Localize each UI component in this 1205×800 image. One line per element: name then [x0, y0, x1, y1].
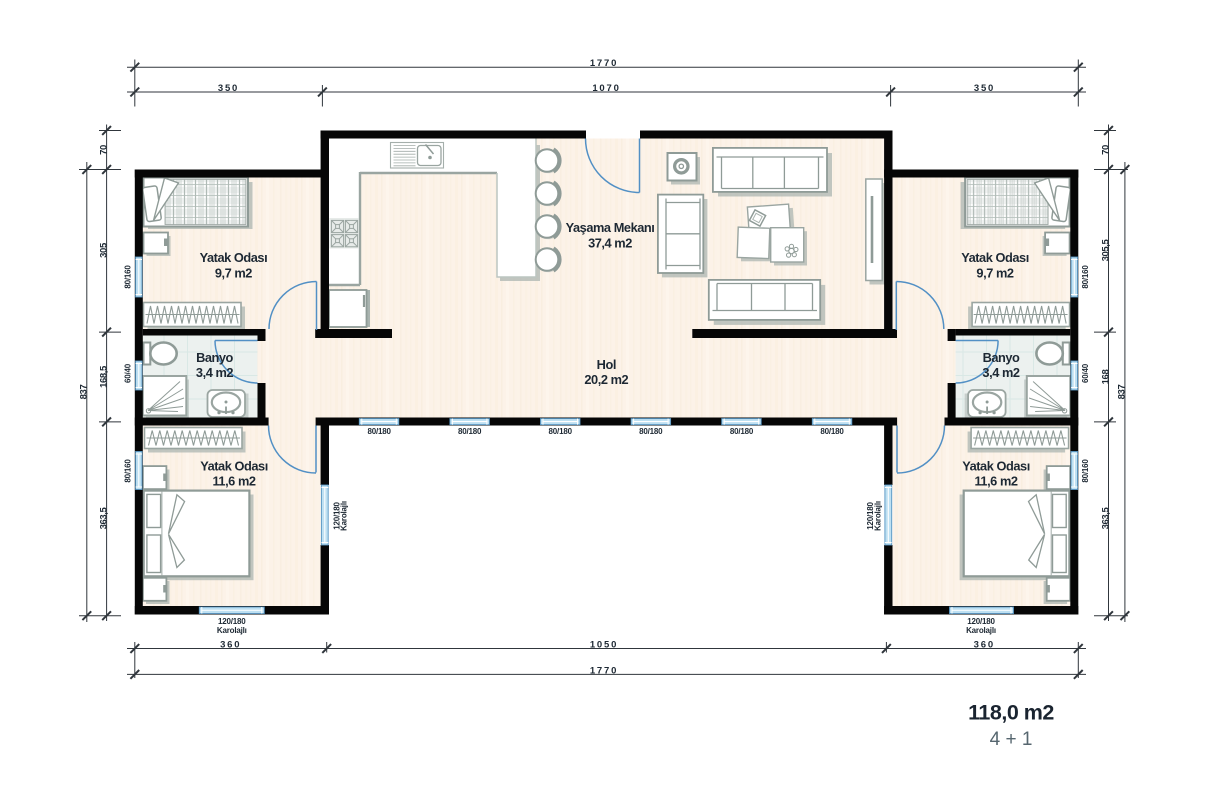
- svg-text:80/180: 80/180: [730, 427, 754, 436]
- svg-text:80/180: 80/180: [549, 427, 573, 436]
- svg-text:837: 837: [79, 385, 90, 400]
- svg-text:Karolajlı: Karolajlı: [217, 626, 247, 635]
- svg-text:305: 305: [98, 242, 109, 258]
- svg-text:Karolajlı: Karolajlı: [966, 626, 996, 635]
- svg-text:37,4 m2: 37,4 m2: [588, 236, 632, 251]
- svg-text:Yatak Odası: Yatak Odası: [961, 250, 1029, 265]
- svg-text:60/40: 60/40: [124, 363, 133, 383]
- svg-text:1770: 1770: [590, 58, 618, 69]
- svg-text:4 + 1: 4 + 1: [990, 729, 1033, 750]
- svg-text:Hol: Hol: [597, 357, 616, 372]
- svg-text:70: 70: [1100, 145, 1111, 155]
- svg-text:1050: 1050: [590, 640, 618, 651]
- svg-text:80/160: 80/160: [124, 265, 133, 289]
- svg-text:60/40: 60/40: [1081, 363, 1090, 383]
- svg-text:3,4 m2: 3,4 m2: [982, 365, 1019, 380]
- svg-text:1070: 1070: [592, 83, 620, 94]
- svg-text:120/180: 120/180: [967, 617, 995, 626]
- svg-text:80/180: 80/180: [367, 427, 391, 436]
- svg-text:360: 360: [974, 640, 995, 651]
- svg-text:Karolajlı: Karolajlı: [340, 501, 349, 531]
- svg-text:350: 350: [974, 83, 995, 94]
- svg-text:1770: 1770: [590, 665, 618, 676]
- svg-text:168,5: 168,5: [98, 365, 109, 388]
- svg-text:363,5: 363,5: [98, 507, 109, 530]
- svg-text:11,6 m2: 11,6 m2: [212, 474, 255, 489]
- svg-text:9,7 m2: 9,7 m2: [976, 266, 1013, 281]
- svg-text:Karolajlı: Karolajlı: [873, 501, 882, 531]
- svg-text:80/160: 80/160: [1081, 265, 1090, 289]
- svg-text:70: 70: [98, 145, 109, 155]
- svg-text:80/160: 80/160: [1081, 459, 1090, 483]
- svg-text:80/180: 80/180: [458, 427, 482, 436]
- svg-text:168: 168: [1100, 370, 1111, 385]
- svg-text:80/180: 80/180: [639, 427, 663, 436]
- svg-text:80/180: 80/180: [820, 427, 844, 436]
- svg-text:Yatak Odası: Yatak Odası: [200, 459, 268, 474]
- svg-text:3,4 m2: 3,4 m2: [196, 365, 233, 380]
- svg-text:363,5: 363,5: [1100, 507, 1111, 530]
- svg-text:118,0 m2: 118,0 m2: [968, 701, 1054, 725]
- svg-text:11,6 m2: 11,6 m2: [974, 474, 1017, 489]
- svg-text:305,5: 305,5: [1100, 239, 1111, 262]
- svg-text:20,2 m2: 20,2 m2: [584, 372, 628, 387]
- svg-text:Banyo: Banyo: [196, 350, 233, 365]
- svg-text:Yaşama Mekanı: Yaşama Mekanı: [566, 220, 655, 235]
- svg-text:120/180: 120/180: [218, 617, 246, 626]
- svg-text:Banyo: Banyo: [983, 350, 1020, 365]
- svg-text:360: 360: [220, 640, 241, 651]
- svg-text:80/160: 80/160: [124, 459, 133, 483]
- svg-text:837: 837: [1117, 385, 1128, 400]
- svg-text:9,7 m2: 9,7 m2: [215, 266, 252, 281]
- svg-text:Yatak Odası: Yatak Odası: [962, 459, 1030, 474]
- svg-text:350: 350: [218, 83, 239, 94]
- svg-text:Yatak Odası: Yatak Odası: [200, 250, 268, 265]
